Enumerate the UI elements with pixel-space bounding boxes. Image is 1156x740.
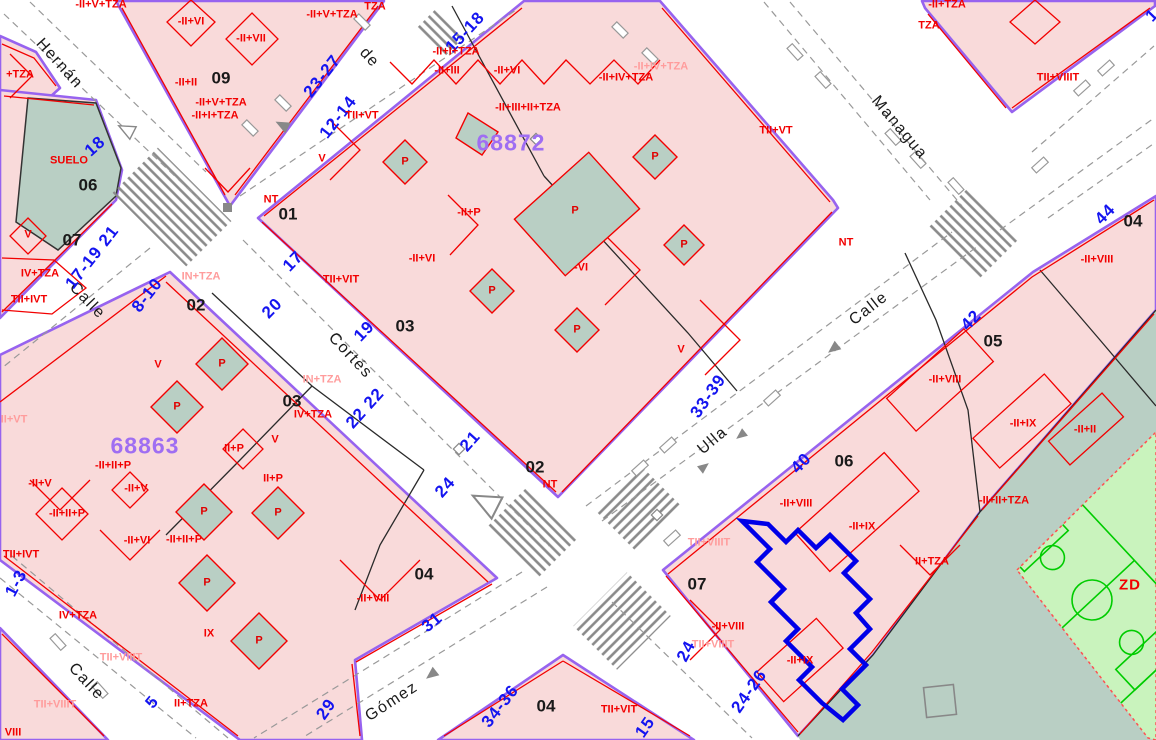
parking-parcel-marker: P [573, 325, 580, 336]
parcel-use-label: IX [204, 629, 214, 640]
block-code-label: 68872 [477, 132, 546, 155]
parcel-use-label: -II+II [1074, 425, 1096, 436]
lot-number-label: 02 [526, 459, 545, 476]
parcel-use-label: -II+II+TZA [979, 496, 1029, 507]
parcel-use-label: II+TZA [915, 557, 949, 568]
street-number-label: 40 [788, 450, 815, 477]
parcel-use-label: -II+I+TZA [191, 111, 238, 122]
street-number-label: 29 [313, 696, 339, 723]
street-name-label: Gómez [363, 679, 421, 725]
lot-number-label: 09 [212, 70, 231, 87]
parcel-use-label: -II+IX [1010, 419, 1037, 430]
street-name-label: Hernán [32, 36, 85, 92]
parcel-use-label: -II+TZA [928, 0, 966, 11]
parcel-use-label: TII+VT [759, 126, 792, 137]
lot-number-label: 04 [1124, 213, 1143, 230]
street-number-label: 8-10 [129, 275, 166, 315]
lot-number-label: 05 [984, 333, 1003, 350]
street-number-label: 34-36 [478, 682, 521, 731]
cadastral-map[interactable]: HernándeCalleCortésManaguaCalleUllaGómez… [0, 0, 1156, 740]
parcel-use-label: -II+VI [124, 536, 151, 547]
parcel-use-label: V [318, 154, 325, 165]
parking-parcel-marker: P [203, 578, 210, 589]
parking-parcel-marker: P [255, 636, 262, 647]
parcel-use-label: TII+IVT [3, 550, 39, 561]
street-name-label: Ulla [695, 424, 731, 458]
street-number-label: 33-39 [687, 371, 729, 420]
parcel-use-label: IN+TZA [182, 272, 221, 283]
parcel-use-label: NT [839, 238, 854, 249]
lot-number-label: 06 [79, 177, 98, 194]
street-number-label: 42 [958, 307, 985, 334]
parcel-use-label: -II+II+P [95, 461, 131, 472]
parking-parcel-marker: P [218, 359, 225, 370]
lot-number-label: 07 [63, 232, 82, 249]
street-name-label: Managua [868, 93, 930, 162]
parking-parcel-marker: P [571, 206, 578, 217]
street-name-label: de [356, 45, 382, 71]
parcel-use-label: -II+II [175, 78, 197, 89]
parcel-use-label: -II+VIII [357, 594, 390, 605]
parcel-use-label: -II+IV+TZA [634, 62, 688, 73]
parcel-use-label: V [677, 345, 684, 356]
street-name-label: Calle [65, 660, 107, 703]
street-number-label: 19 [351, 318, 378, 345]
parcel-use-label: TII+VIT [601, 705, 637, 716]
parcel-use-label: V [271, 435, 278, 446]
street-number-label: 1 [1142, 5, 1156, 24]
parcel-use-label: IN+TZA [303, 375, 342, 386]
map-labels-layer: HernándeCalleCortésManaguaCalleUllaGómez… [0, 0, 1156, 740]
parcel-use-label: -VI [574, 263, 588, 274]
parking-parcel-marker: P [274, 508, 281, 519]
parcel-use-label: -II+VIII [780, 499, 813, 510]
street-number-label: 5 [142, 693, 162, 712]
street-name-label: Calle [847, 289, 891, 329]
parcel-use-label: II+TZA [174, 699, 208, 710]
parcel-use-label: -II+P [457, 208, 481, 219]
parcel-use-label: -II+IX [849, 522, 876, 533]
parcel-use-label: +TZA [6, 70, 34, 81]
parcel-use-label: -II+VII [236, 34, 266, 45]
parcel-use-label: NT [543, 480, 558, 491]
parking-parcel-marker: P [488, 286, 495, 297]
parcel-use-label: -II+VI [409, 254, 436, 265]
street-number-label: 21 [457, 428, 484, 455]
lot-number-label: 04 [415, 566, 434, 583]
lot-number-label: 02 [187, 297, 206, 314]
block-code-label: 68863 [111, 435, 180, 458]
parcel-use-label: V [24, 230, 31, 241]
parcel-use-label: -II+V+TZA [75, 0, 126, 11]
parcel-use-label: -II+III+II+TZA [495, 103, 561, 114]
parcel-use-label: TII+VIIIT [688, 538, 730, 549]
parking-parcel-marker: P [680, 240, 687, 251]
parcel-use-label: TII+VIIIT [692, 640, 734, 651]
street-number-label: 20 [259, 295, 286, 322]
parcel-use-label: -II+IX [787, 656, 814, 667]
lot-number-label: 07 [688, 576, 707, 593]
parcel-use-label: -II+VIII [929, 375, 962, 386]
parcel-use-label: VIII [5, 728, 22, 739]
zone-label: ZD [1119, 578, 1141, 593]
lot-number-label: 01 [279, 206, 298, 223]
parcel-use-label: TII+IVT [11, 295, 47, 306]
parcel-use-label: II+P [263, 474, 283, 485]
lot-number-label: 04 [537, 698, 556, 715]
parcel-use-label: V [154, 360, 161, 371]
parcel-use-label: SUELO [50, 156, 88, 167]
parking-parcel-marker: P [651, 152, 658, 163]
parcel-use-label: TII+VT [345, 111, 378, 122]
street-number-label: 22 22 [343, 385, 387, 432]
parcel-use-label: TII+VIIIT [100, 653, 142, 664]
parcel-use-label: -II+VIII [712, 622, 745, 633]
parcel-use-label: -II+V [124, 484, 148, 495]
parking-parcel-marker: P [173, 402, 180, 413]
lot-number-label: 03 [396, 318, 415, 335]
parcel-use-label: IV+TZA [59, 611, 97, 622]
parcel-use-label: -II+VIII [1081, 255, 1114, 266]
parcel-use-label: II+VT [1, 415, 28, 426]
parking-parcel-marker: P [200, 507, 207, 518]
parcel-use-label: -II+II+P [49, 509, 85, 520]
parcel-use-label: TII+VIIIT [1037, 73, 1079, 84]
parcel-use-label: -II+IV+TZA [599, 73, 653, 84]
parcel-use-label: -II+VI [494, 66, 521, 77]
parcel-use-label: -II+VI [178, 17, 205, 28]
street-number-label: 1-3 [2, 567, 30, 599]
street-number-label: 17 [280, 248, 307, 275]
street-number-label: 31 [419, 609, 446, 635]
parcel-use-label: -II+I+TZA [432, 47, 479, 58]
parcel-use-label: TII+VIIIT [34, 700, 76, 711]
parcel-use-label: IV+TZA [21, 269, 59, 280]
street-number-label: 44 [1092, 201, 1119, 228]
parcel-use-label: -II+V [28, 479, 52, 490]
parcel-use-label: TZA [918, 21, 939, 32]
parcel-use-label: NT [264, 195, 279, 206]
parcel-use-label: TZA [364, 2, 385, 13]
street-number-label: 24 [432, 474, 459, 501]
street-number-label: 23-27 [300, 52, 343, 101]
street-number-label: 24-26 [728, 666, 770, 715]
parcel-use-label: -II+III [434, 66, 459, 77]
parcel-use-label: IV+TZA [294, 410, 332, 421]
parcel-use-label: -II+II+P [166, 535, 202, 546]
parcel-use-label: -II+V+TZA [195, 98, 246, 109]
parking-parcel-marker: P [401, 157, 408, 168]
lot-number-label: 06 [835, 453, 854, 470]
parcel-use-label: TII+VIT [323, 275, 359, 286]
lot-number-label: 03 [283, 393, 302, 410]
street-number-label: 15 [632, 714, 658, 740]
parcel-use-label: -II+V+TZA [306, 10, 357, 21]
parcel-use-label: II+P [224, 444, 244, 455]
